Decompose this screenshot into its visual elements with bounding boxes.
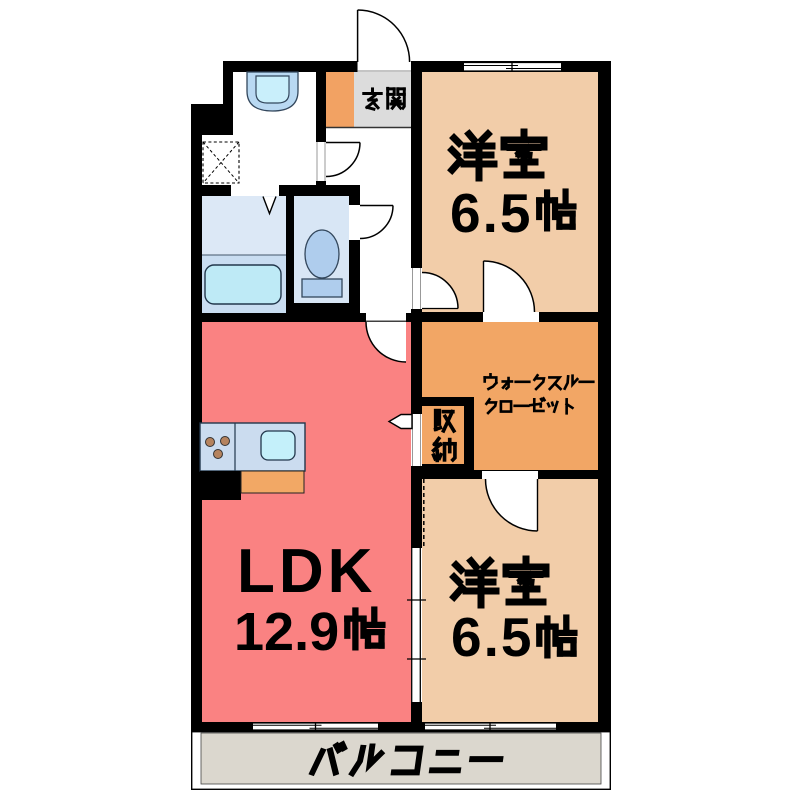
svg-text:12.9: 12.9 xyxy=(234,602,339,662)
svg-text:LDK: LDK xyxy=(237,537,376,606)
svg-text:6.5: 6.5 xyxy=(451,606,533,668)
svg-text:6.5: 6.5 xyxy=(450,182,532,244)
